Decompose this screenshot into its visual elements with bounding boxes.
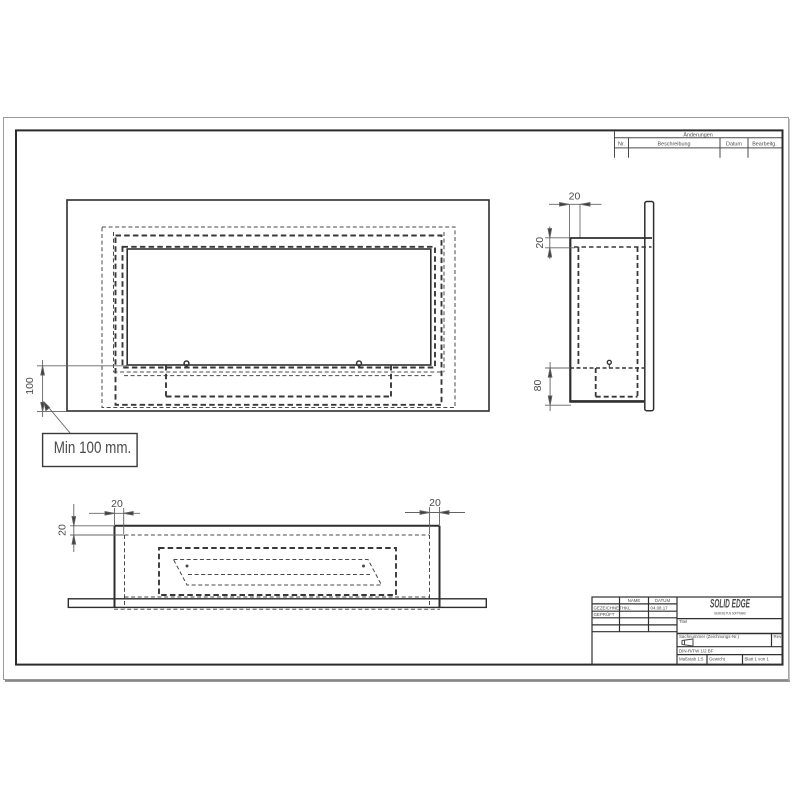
svg-text:80: 80 <box>532 380 544 392</box>
svg-text:20: 20 <box>534 237 546 249</box>
svg-text:Gewicht: Gewicht <box>709 656 726 661</box>
svg-text:SOLID EDGE: SOLID EDGE <box>710 599 750 611</box>
svg-text:SIEMENS PLM SOFTWARE: SIEMENS PLM SOFTWARE <box>714 611 746 616</box>
svg-text:20: 20 <box>57 524 69 536</box>
svg-text:Maßstab 1:5: Maßstab 1:5 <box>679 656 704 661</box>
svg-text:GEZEICHNET: GEZEICHNET <box>594 605 623 610</box>
svg-text:Nr.: Nr. <box>618 141 625 147</box>
svg-text:Bearbeitg.: Bearbeitg. <box>752 141 777 147</box>
svg-text:Blatt 1 von 1: Blatt 1 von 1 <box>745 656 770 661</box>
svg-text:Beschreibung: Beschreibung <box>658 141 691 147</box>
svg-text:Titel: Titel <box>679 619 687 624</box>
svg-text:DIN-R/TW 1/2 BF: DIN-R/TW 1/2 BF <box>679 648 714 653</box>
svg-text:Min 100 mm.: Min 100 mm. <box>54 439 132 457</box>
svg-text:Rev: Rev <box>774 634 783 639</box>
svg-text:HKL: HKL <box>622 605 631 610</box>
svg-text:GEPRÜFT: GEPRÜFT <box>594 612 615 617</box>
svg-text:04.08.17: 04.08.17 <box>651 605 669 610</box>
svg-text:20: 20 <box>111 498 123 510</box>
svg-text:20: 20 <box>429 497 441 509</box>
svg-text:Datum: Datum <box>726 141 742 147</box>
svg-text:Änderungen: Änderungen <box>683 131 712 138</box>
svg-text:NAME: NAME <box>628 598 641 603</box>
svg-text:20: 20 <box>569 191 581 203</box>
svg-text:DATUM: DATUM <box>655 598 671 603</box>
svg-text:100: 100 <box>24 377 36 395</box>
svg-text:Sachnummer (Zeichnungs-Nr.): Sachnummer (Zeichnungs-Nr.) <box>679 634 740 639</box>
